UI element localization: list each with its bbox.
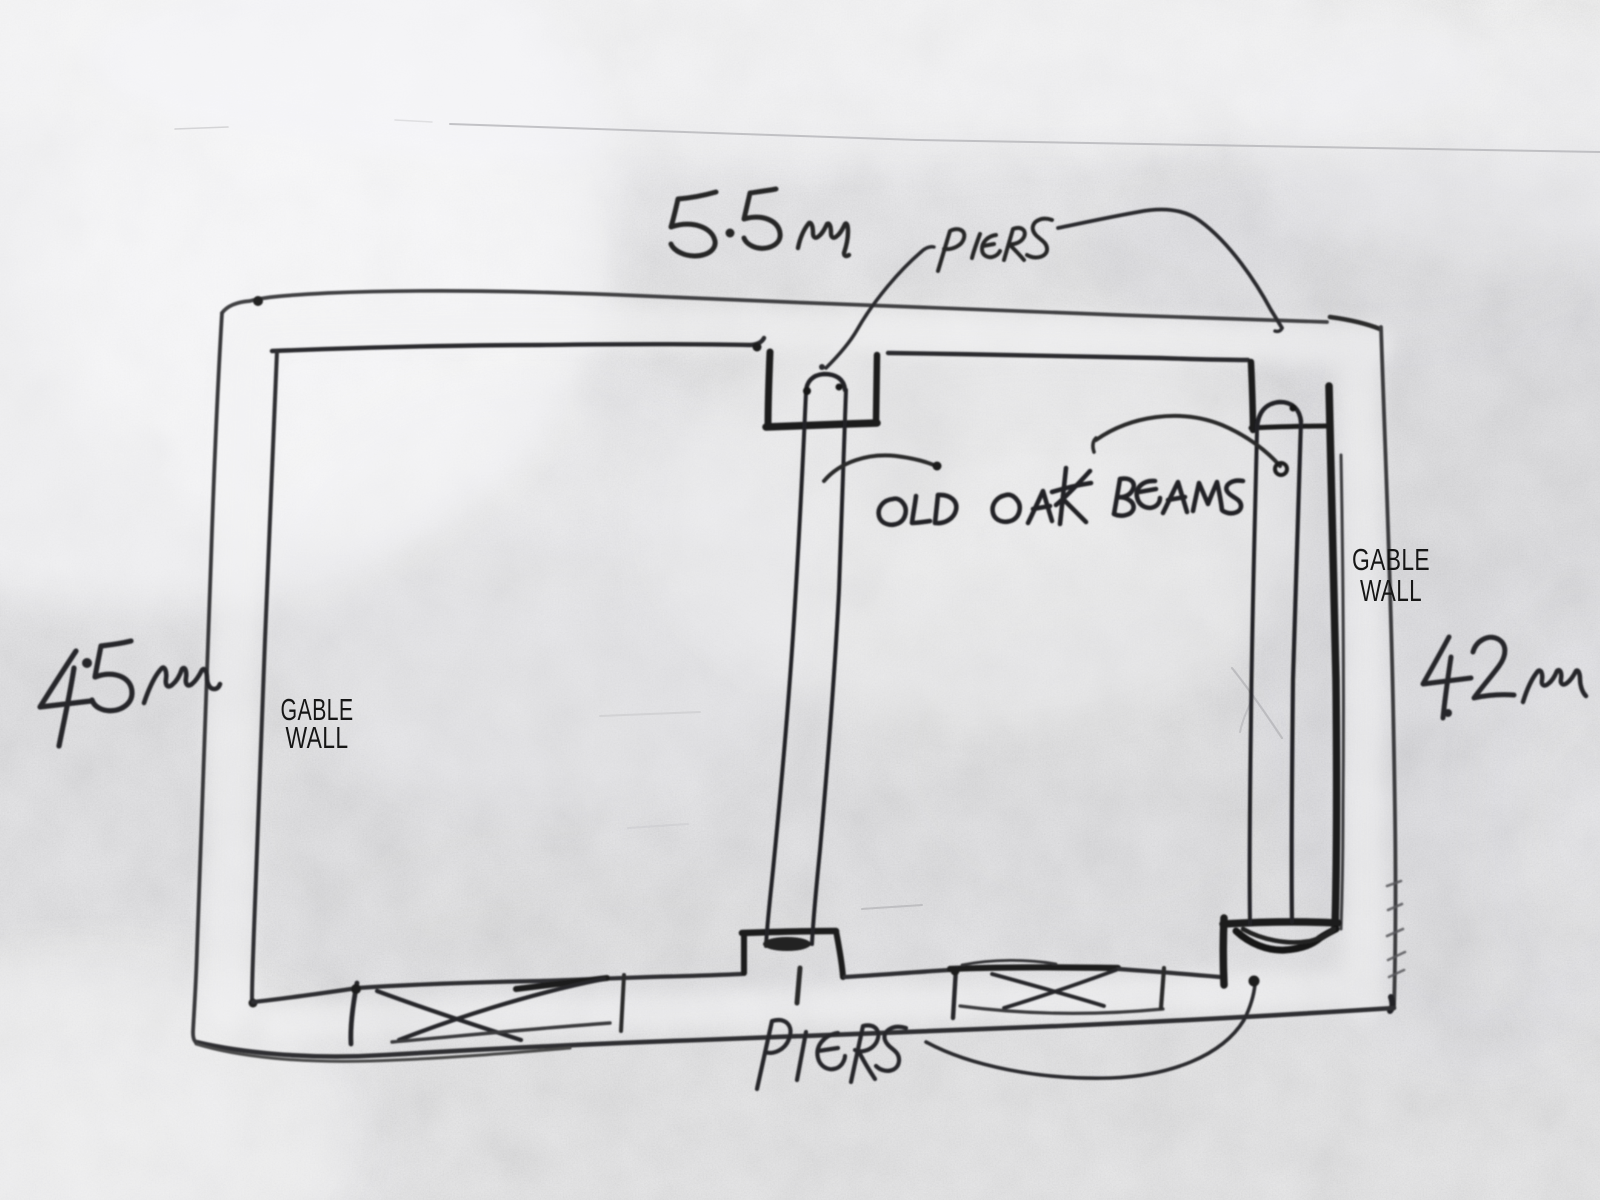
svg-text:GABLE: GABLE	[1352, 542, 1430, 577]
svg-text:WALL: WALL	[286, 720, 349, 755]
svg-text:WALL: WALL	[1360, 573, 1422, 608]
